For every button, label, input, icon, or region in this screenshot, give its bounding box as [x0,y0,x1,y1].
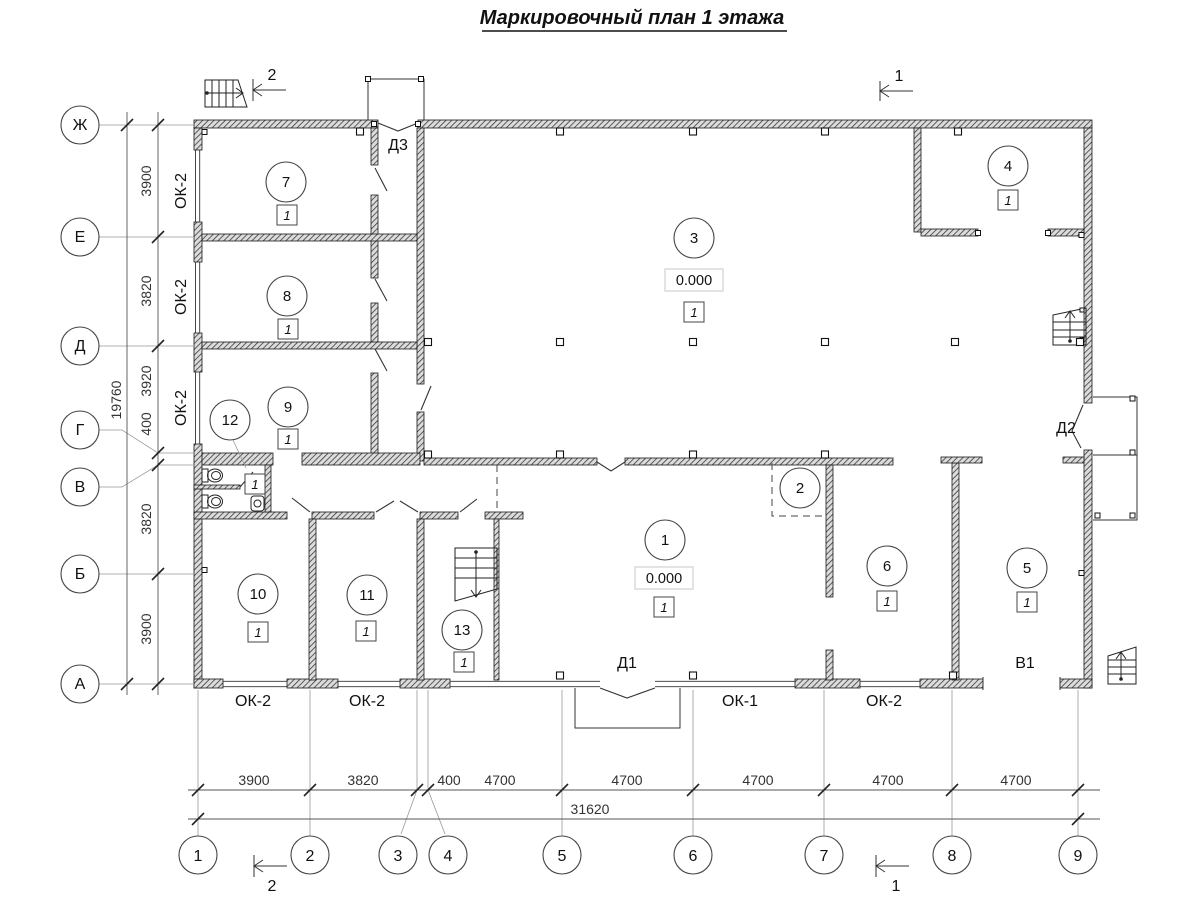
section-1-top-label: 1 [895,68,904,85]
dim-bottom-5: 4700 [611,772,642,788]
window-ok1-bottom: ОК-1 [722,693,758,710]
dimension-text-bottom: 3900 3820 400 4700 4700 4700 4700 4700 3… [238,772,1031,817]
room-12-floor: 1 [251,477,258,492]
axis-col-5: 5 [558,848,567,865]
room-5-floor: 1 [1023,595,1030,610]
dim-left-6: 3900 [138,613,154,644]
axis-col-7: 7 [820,848,829,865]
dim-bottom-total: 31620 [571,801,610,817]
door-d3-label: Д3 [388,137,408,154]
axis-col-8: 8 [948,848,957,865]
room-10-floor: 1 [254,625,261,640]
axis-col-9: 9 [1074,848,1083,865]
room-4-floor: 1 [1004,193,1011,208]
opening-labels: ОК-2 ОК-2 ОК-2 ОК-2 ОК-2 ОК-1 ОК-2 Д1 Д2… [173,137,1076,710]
window-ok2-left-3: ОК-2 [173,390,190,426]
room-11-number: 11 [359,587,375,604]
dim-bottom-4: 4700 [484,772,515,788]
room-8-number: 8 [283,288,291,305]
axis-row-v: В [75,479,86,496]
axis-row-b: Б [75,566,86,583]
room-3-floor: 1 [690,305,697,320]
axis-col-2: 2 [306,848,315,865]
room-4-number: 4 [1004,158,1012,175]
room-12-number: 12 [222,412,239,429]
drawing-page: Маркировочный план 1 этажа [0,0,1200,900]
axis-row-a: А [75,676,86,693]
room-8-floor: 1 [284,322,291,337]
room-1-floor: 1 [660,600,667,615]
room-6-floor: 1 [883,594,890,609]
dim-left-3: 3920 [138,365,154,396]
dim-left-1: 3900 [138,165,154,196]
axis-row-zh: Ж [73,117,88,134]
axis-col-6: 6 [689,848,698,865]
door-d1-label: Д1 [617,655,637,672]
stair-room13 [455,548,497,601]
room-2-number: 2 [796,480,804,497]
gate-v1-label: В1 [1015,655,1035,672]
dim-bottom-3: 400 [437,772,461,788]
room-9-floor: 1 [284,432,291,447]
section-2-top-label: 2 [268,67,277,84]
walls [194,120,1092,688]
section-2-bottom-label: 2 [268,878,277,895]
window-ok2-bottom-2: ОК-2 [349,693,385,710]
room-1-number: 1 [661,532,669,549]
dim-bottom-6: 4700 [742,772,773,788]
room-6-number: 6 [883,558,891,575]
room-9-number: 9 [284,399,292,416]
window-ok2-bottom-3: ОК-2 [866,693,902,710]
room-labels: 1 0.000 1 2 3 0.000 1 4 1 5 1 6 1 7 1 8 … [210,146,1047,672]
dim-bottom-7: 4700 [872,772,903,788]
axis-col-3: 3 [394,848,403,865]
floor-plan-canvas: Маркировочный план 1 этажа [0,0,1200,900]
dim-bottom-2: 3820 [347,772,378,788]
room-3-number: 3 [690,230,698,247]
dim-bottom-8: 4700 [1000,772,1031,788]
stair-top-left [205,80,247,107]
dashed-boundaries [497,463,826,516]
window-ok2-left-1: ОК-2 [173,173,190,209]
drawing-title: Маркировочный план 1 этажа [480,7,787,31]
axis-bubbles-left: Ж Е Д Г В Б А [61,106,99,703]
window-ok2-bottom-1: ОК-2 [235,693,271,710]
door-d2-label: Д2 [1056,420,1076,437]
title-text: Маркировочный план 1 этажа [480,7,785,29]
room-5-number: 5 [1023,560,1031,577]
axis-row-d: Д [75,338,86,355]
window-ok2-left-2: ОК-2 [173,279,190,315]
room-1-level: 0.000 [646,571,682,587]
axis-row-g: Г [76,422,85,439]
dim-left-5: 3820 [138,503,154,534]
dim-left-2: 3820 [138,275,154,306]
dim-bottom-1: 3900 [238,772,269,788]
axis-col-4: 4 [444,848,453,865]
axis-row-e: Е [75,229,86,246]
room-7-floor: 1 [283,208,290,223]
room-3-level: 0.000 [676,273,712,289]
room-7-number: 7 [282,174,290,191]
room-13-floor: 1 [460,655,467,670]
axis-bubbles-bottom: 1 2 3 4 5 6 7 8 9 [179,836,1097,874]
stair-bottom-right [1108,647,1136,684]
room-11-floor: 1 [362,624,369,639]
axis-col-1: 1 [194,848,203,865]
dim-left-4: 400 [138,412,154,436]
section-1-bottom-label: 1 [892,878,901,895]
room-13-number: 13 [454,622,471,639]
room-10-number: 10 [250,586,267,603]
dim-left-total: 19760 [108,380,124,419]
